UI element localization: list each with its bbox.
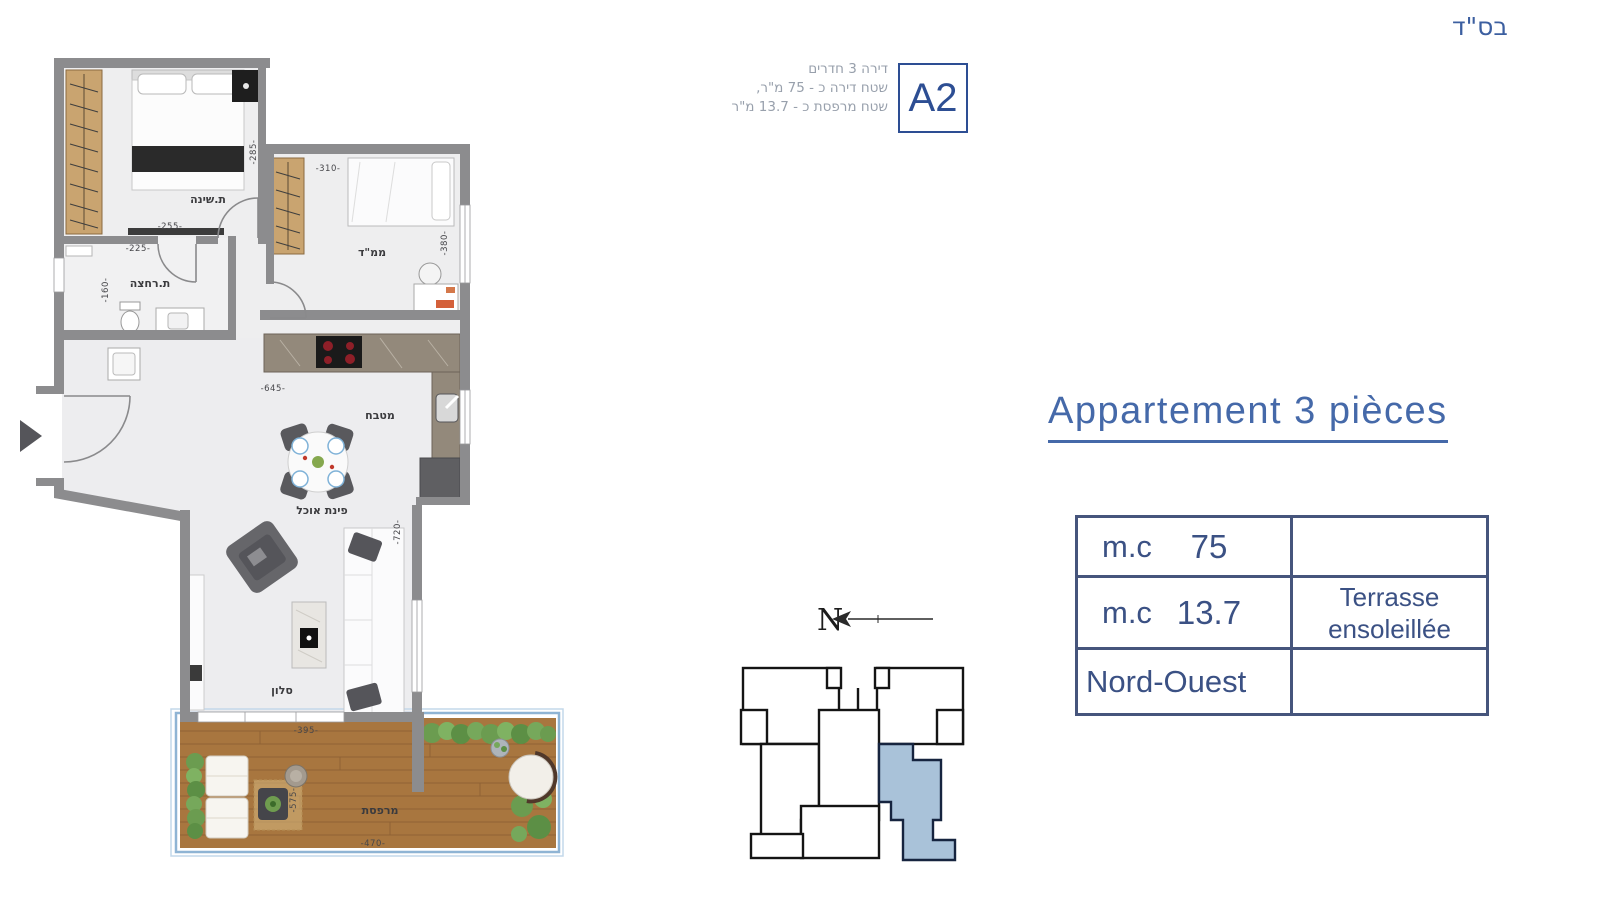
north-arrow: N bbox=[817, 603, 933, 638]
building-key-plan: N bbox=[715, 588, 985, 888]
area-unit-label: m.c bbox=[1102, 529, 1152, 565]
label-dining: פינת אוכל bbox=[296, 504, 347, 517]
label-balcony: מרפסת bbox=[362, 804, 399, 817]
orientation-value: Nord-Ouest bbox=[1086, 664, 1246, 700]
blessing-text: בס"ד bbox=[1452, 12, 1508, 41]
dim-bathroom-w: -225- bbox=[126, 244, 151, 254]
terrace-note-line-1: Terrasse bbox=[1340, 581, 1440, 613]
dining-set bbox=[279, 422, 355, 501]
label-safe-room: ממ"ד bbox=[358, 246, 386, 259]
dim-safe-room-h: -380- bbox=[440, 231, 450, 256]
table-cell-area: m.c 75 bbox=[1078, 518, 1293, 578]
dim-kitchen-w: -645- bbox=[261, 384, 286, 394]
unit-info-line-1: דירה 3 חדרים bbox=[690, 60, 888, 79]
balcony bbox=[171, 709, 563, 856]
dim-bedroom-w: -255- bbox=[158, 222, 183, 232]
dim-balcony-h: -575- bbox=[289, 788, 299, 813]
table-cell-terrace-area: m.c 13.7 bbox=[1078, 578, 1293, 650]
table-cell-empty-2 bbox=[1293, 650, 1486, 713]
info-table: m.c 75 m.c 13.7 Terrasse ensoleillée Nor… bbox=[1075, 515, 1489, 716]
label-bedroom: ת.שינה bbox=[190, 193, 226, 206]
terrace-value: 13.7 bbox=[1152, 594, 1266, 632]
highlighted-unit bbox=[879, 744, 955, 860]
terrace-note-line-2: ensoleillée bbox=[1328, 613, 1451, 645]
dim-hall-h: -285- bbox=[249, 140, 259, 165]
dim-balcony-w: -470- bbox=[361, 839, 386, 849]
label-living: סלון bbox=[271, 684, 293, 697]
unit-info-block: דירה 3 חדרים שטח דירה כ - 75 מ"ר, שטח מר… bbox=[690, 60, 888, 117]
dim-living-w: -395- bbox=[294, 726, 319, 736]
page-title: Appartement 3 pièces bbox=[1048, 390, 1448, 443]
dim-living-h: -720- bbox=[393, 520, 403, 545]
unit-info-line-3: שטח מרפסת כ - 13.7 מ"ר bbox=[690, 98, 888, 117]
label-kitchen: מטבח bbox=[365, 409, 395, 422]
table-cell-terrace-note: Terrasse ensoleillée bbox=[1293, 578, 1486, 650]
dim-bathroom-h: -160- bbox=[101, 278, 111, 303]
table-cell-orientation: Nord-Ouest bbox=[1078, 650, 1293, 713]
unit-info-line-2: שטח דירה כ - 75 מ"ר, bbox=[690, 79, 888, 98]
unit-code-badge: A2 bbox=[898, 63, 968, 133]
floorplan: ת.שינה -255- -285- ממ"ד -310- -380- ת.רח… bbox=[10, 50, 575, 865]
unit-code: A2 bbox=[909, 76, 958, 121]
entry-arrow-icon bbox=[20, 420, 42, 452]
area-value: 75 bbox=[1152, 528, 1266, 566]
table-cell-empty-1 bbox=[1293, 518, 1486, 578]
terrace-unit-label: m.c bbox=[1102, 595, 1152, 631]
dim-safe-room-w: -310- bbox=[316, 164, 341, 174]
label-bathroom: ת.רחצה bbox=[130, 277, 171, 290]
